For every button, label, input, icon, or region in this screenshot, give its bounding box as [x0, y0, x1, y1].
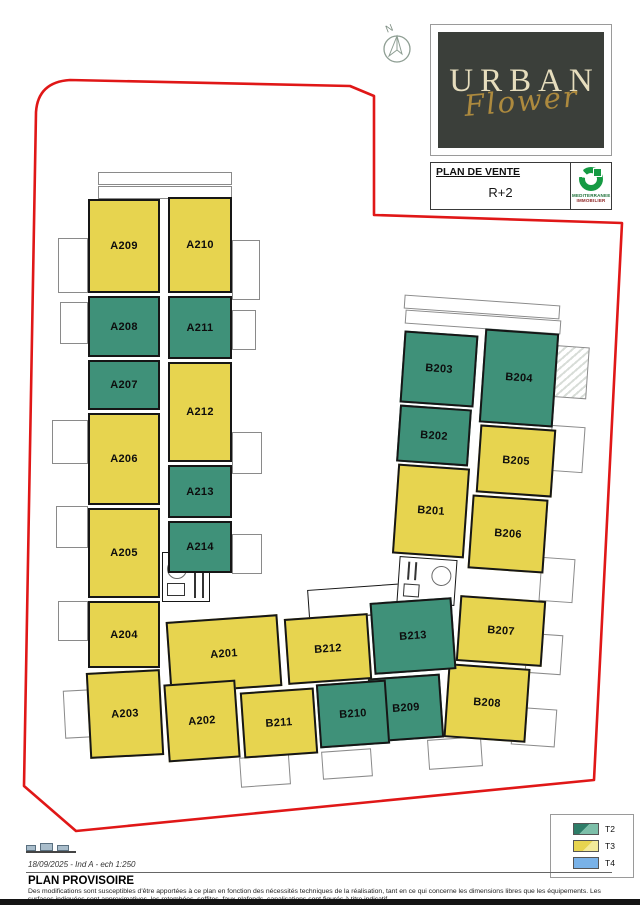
unit-B211: B211 — [240, 687, 318, 758]
document-title: PLAN DE VENTE — [436, 166, 520, 178]
unit-label: A211 — [187, 322, 214, 334]
unit-label: B207 — [487, 624, 515, 638]
unit-label: A210 — [186, 239, 214, 251]
balcony — [58, 238, 88, 293]
unit-label: A207 — [110, 379, 138, 391]
unit-label: A208 — [110, 321, 138, 333]
project-logo: URBAN Flower — [430, 24, 612, 156]
agency-logo-icon — [579, 167, 603, 191]
legend: T2 T3 T4 — [550, 814, 634, 878]
agency-logo: MEDITERRANEE IMMOBILIER — [571, 163, 611, 209]
north-arrow-icon: N — [372, 20, 420, 70]
floor-level: R+2 — [431, 185, 570, 200]
unit-label: B213 — [399, 629, 427, 643]
unit-B203: B203 — [400, 331, 479, 408]
unit-A203: A203 — [86, 669, 164, 759]
unit-label: B208 — [473, 696, 501, 710]
t2-swatch — [573, 823, 599, 835]
bottom-bar — [0, 899, 640, 905]
t2-label: T2 — [605, 824, 615, 834]
t3-swatch — [573, 840, 599, 852]
unit-label: B211 — [265, 716, 293, 730]
balcony — [58, 601, 88, 641]
legend-item-t4: T4 — [573, 854, 633, 871]
unit-A211: A211 — [168, 296, 232, 359]
unit-B208: B208 — [444, 663, 531, 743]
unit-A204: A204 — [88, 601, 160, 668]
balcony — [239, 754, 291, 787]
unit-A208: A208 — [88, 296, 160, 357]
unit-B204: B204 — [479, 329, 559, 428]
unit-label: A214 — [186, 541, 214, 553]
unit-label: A201 — [210, 647, 238, 661]
balcony — [52, 420, 88, 464]
north-label: N — [384, 23, 395, 36]
balcony — [232, 310, 256, 350]
unit-label: B210 — [339, 707, 367, 721]
unit-B205: B205 — [476, 424, 557, 497]
balcony — [56, 506, 88, 548]
unit-A214: A214 — [168, 521, 232, 573]
footer-separator — [26, 872, 612, 873]
unit-label: A206 — [110, 453, 138, 465]
unit-label: A209 — [110, 240, 138, 252]
plan-provisoire-title: PLAN PROVISOIRE — [28, 875, 134, 887]
unit-B202: B202 — [396, 405, 472, 467]
unit-label: A205 — [110, 547, 138, 559]
t4-label: T4 — [605, 858, 615, 868]
unit-B210: B210 — [316, 680, 390, 749]
unit-B207: B207 — [456, 595, 546, 667]
unit-label: B205 — [502, 454, 530, 468]
unit-label: A203 — [111, 707, 139, 720]
unit-label: B206 — [494, 527, 522, 541]
unit-label: B203 — [425, 362, 453, 376]
balcony — [321, 748, 373, 779]
t4-swatch — [573, 857, 599, 869]
unit-label: B201 — [417, 504, 445, 518]
unit-A213: A213 — [168, 465, 232, 518]
balcony — [539, 557, 576, 603]
unit-A212: A212 — [168, 362, 232, 462]
title-block: PLAN DE VENTE R+2 MEDITERRANEE IMMOBILIE… — [430, 162, 612, 210]
unit-label: B209 — [392, 701, 420, 715]
balcony — [98, 172, 232, 185]
unit-B213: B213 — [370, 597, 457, 675]
balcony — [60, 302, 88, 344]
balcony — [232, 432, 262, 474]
scale-bar-icon — [26, 840, 76, 854]
unit-label: B212 — [314, 642, 342, 656]
legend-item-t3: T3 — [573, 837, 633, 854]
unit-label: A213 — [186, 486, 214, 498]
unit-label: B204 — [505, 371, 533, 385]
balcony — [427, 736, 483, 770]
revision-note: 18/09/2025 - Ind A - ech 1:250 — [28, 860, 135, 869]
unit-A209: A209 — [88, 199, 160, 293]
unit-A210: A210 — [168, 197, 232, 293]
unit-label: A202 — [188, 714, 216, 728]
unit-A206: A206 — [88, 413, 160, 505]
t3-label: T3 — [605, 841, 615, 851]
plan-de-vente-sheet: N URBAN Flower PLAN DE VENTE R+2 MEDITER… — [0, 0, 640, 905]
unit-B201: B201 — [392, 464, 470, 559]
agency-name-line2: IMMOBILIER — [577, 198, 606, 203]
unit-A207: A207 — [88, 360, 160, 410]
unit-A205: A205 — [88, 508, 160, 598]
unit-label: A212 — [186, 406, 214, 418]
balcony — [232, 240, 260, 300]
title-block-left: PLAN DE VENTE R+2 — [431, 163, 571, 209]
logo-background: URBAN Flower — [438, 32, 604, 148]
legend-item-t2: T2 — [573, 820, 633, 837]
unit-label: B202 — [420, 429, 448, 443]
unit-label: A204 — [110, 629, 138, 641]
unit-A202: A202 — [163, 680, 240, 763]
unit-B212: B212 — [284, 613, 372, 685]
balcony — [232, 534, 262, 574]
unit-B206: B206 — [468, 494, 549, 573]
